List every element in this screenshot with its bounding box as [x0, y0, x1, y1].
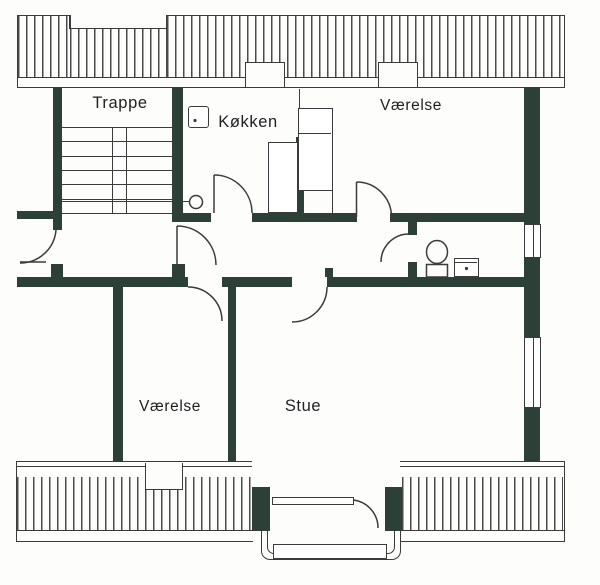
label-kokken: Køkken [208, 113, 288, 132]
toilet [427, 241, 448, 278]
label-vaerelse-bottom: Værelse [130, 398, 210, 416]
door-arc-bathroom [381, 234, 409, 262]
door-arc-balcony [353, 500, 378, 528]
door-arc-stue [292, 287, 327, 322]
bathroom-sink-dot [465, 267, 468, 270]
label-vaerelse-top: Værelse [371, 97, 451, 115]
door-arc-corridor [177, 226, 216, 265]
floor-plan: Trappe Køkken Værelse Værelse Stue [0, 0, 600, 585]
door-arc-kitchen [214, 175, 252, 213]
kitchen-sink-dot [193, 119, 196, 122]
door-arc-stair-foot [20, 230, 56, 263]
door-arc-bedroom-bottom [188, 287, 222, 321]
handrail-newel [190, 196, 203, 209]
door-arc-bedroom-top [357, 182, 392, 217]
label-stue: Stue [263, 397, 343, 416]
door-arcs-layer [0, 0, 600, 585]
label-trappe: Trappe [80, 94, 160, 113]
